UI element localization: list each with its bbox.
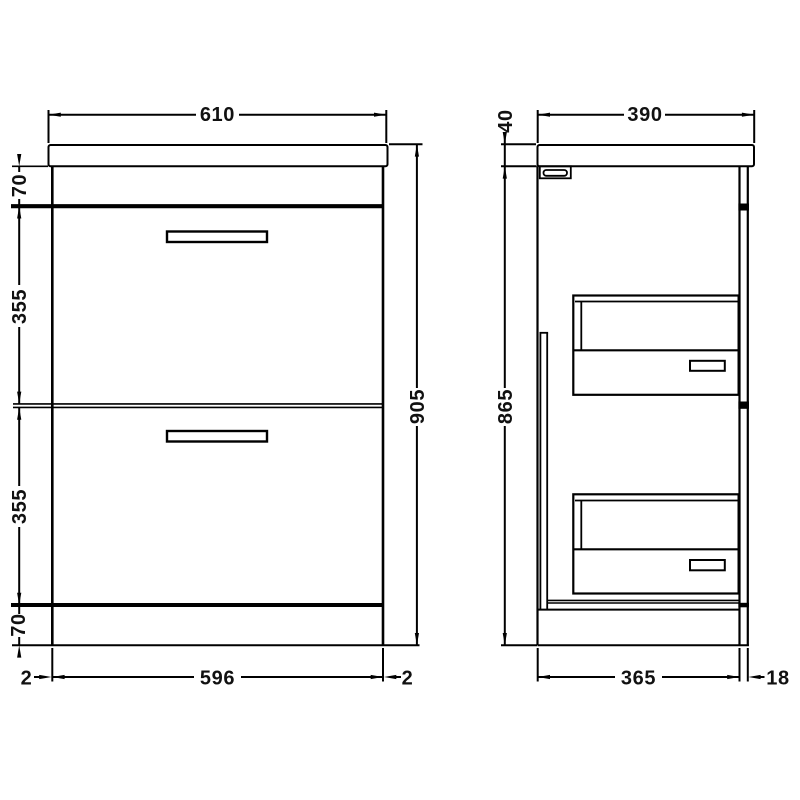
svg-text:596: 596	[200, 668, 235, 690]
svg-text:2: 2	[402, 668, 414, 690]
svg-text:2: 2	[21, 668, 33, 690]
svg-text:355: 355	[9, 489, 31, 524]
svg-text:355: 355	[9, 289, 31, 324]
svg-text:18: 18	[766, 668, 789, 690]
svg-text:70: 70	[9, 174, 31, 197]
svg-text:40: 40	[495, 109, 517, 132]
svg-text:365: 365	[621, 668, 656, 690]
svg-text:70: 70	[8, 613, 30, 636]
svg-text:865: 865	[495, 389, 517, 424]
svg-text:610: 610	[200, 104, 235, 126]
svg-text:905: 905	[407, 389, 429, 424]
svg-text:390: 390	[627, 104, 662, 126]
